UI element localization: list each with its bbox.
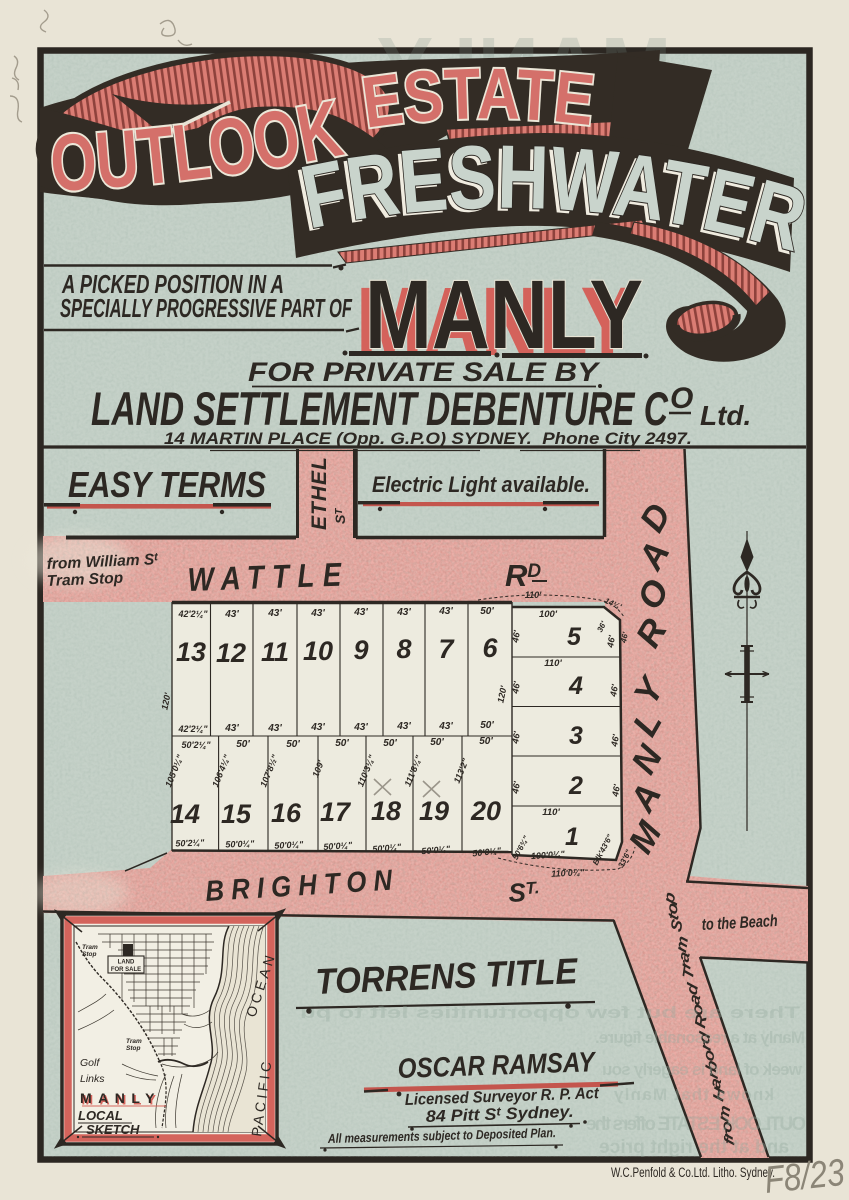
svg-text:and at the right price: and at the right price: [599, 1137, 789, 1158]
svg-text:43': 43': [438, 606, 453, 617]
svg-text:50': 50': [383, 738, 397, 749]
svg-text:50': 50': [480, 606, 494, 617]
svg-text:10: 10: [303, 636, 333, 666]
svg-text:Links: Links: [80, 1073, 105, 1085]
svg-text:42'2¼": 42'2¼": [178, 724, 209, 734]
svg-text:Stop: Stop: [82, 951, 96, 958]
svg-text:20: 20: [470, 796, 501, 826]
svg-text:9: 9: [353, 635, 368, 665]
svg-text:50'0¼": 50'0¼": [225, 838, 255, 849]
svg-text:43': 43': [310, 722, 325, 733]
svg-text:14 MARTIN PLACE (Opp. G.P.O) S: 14 MARTIN PLACE (Opp. G.P.O) SYDNEY. Pho…: [164, 430, 692, 448]
svg-text:18: 18: [371, 796, 401, 826]
svg-text:O: O: [670, 382, 693, 415]
svg-text:LAND SETTLEMENT DEBENTURE C: LAND SETTLEMENT DEBENTURE C: [91, 382, 669, 435]
svg-text:110': 110': [544, 658, 562, 669]
svg-text:16: 16: [271, 798, 302, 828]
svg-text:43': 43': [438, 721, 453, 732]
svg-text:There are but few opportunitie: There are but few opportunities left to …: [300, 1003, 800, 1022]
svg-text:43': 43': [267, 723, 282, 734]
svg-text:6: 6: [482, 633, 498, 663]
svg-text:50': 50': [480, 720, 494, 731]
svg-text:50'0¼": 50'0¼": [323, 840, 353, 852]
svg-text:F8/23: F8/23: [763, 1152, 847, 1200]
svg-text:LOCAL: LOCAL: [78, 1108, 123, 1123]
svg-text:FOR SALE: FOR SALE: [111, 967, 141, 973]
svg-text:Stop: Stop: [126, 1045, 140, 1052]
svg-text:ETHEL: ETHEL: [308, 456, 331, 530]
svg-text:13: 13: [176, 637, 206, 667]
svg-text:1: 1: [565, 823, 579, 851]
svg-text:17: 17: [320, 797, 352, 827]
svg-text:SKETCH: SKETCH: [86, 1122, 140, 1137]
svg-text:8: 8: [396, 634, 411, 664]
svg-text:7: 7: [438, 634, 455, 664]
svg-text:Tram: Tram: [126, 1038, 142, 1045]
svg-text:19: 19: [419, 796, 449, 826]
svg-text:50'0¼": 50'0¼": [274, 839, 304, 851]
svg-text:Tram Stop: Tram Stop: [46, 570, 123, 590]
svg-text:42'2¼": 42'2¼": [178, 609, 209, 619]
svg-text:SPECIALLY PROGRESSIVE PART OF: SPECIALLY PROGRESSIVE PART OF: [60, 293, 353, 323]
svg-text:50'2¼": 50'2¼": [175, 837, 205, 848]
svg-text:15: 15: [221, 799, 252, 829]
svg-text:50': 50': [430, 737, 444, 748]
svg-text:14: 14: [170, 799, 200, 829]
svg-text:43': 43': [353, 722, 368, 733]
svg-text:50': 50': [286, 739, 300, 750]
svg-text:4: 4: [568, 672, 583, 700]
svg-text:100': 100': [539, 609, 558, 620]
svg-text:WATTLE: WATTLE: [187, 555, 350, 598]
svg-text:50'2¼": 50'2¼": [182, 740, 212, 750]
svg-text:50': 50': [479, 736, 493, 747]
svg-text:Ltd.: Ltd.: [700, 400, 751, 431]
svg-text:5: 5: [567, 623, 582, 651]
svg-text:Golf: Golf: [80, 1057, 100, 1069]
svg-text:11: 11: [261, 637, 289, 667]
svg-text:Manly at a reasonable figure.: Manly at a reasonable figure.: [595, 1028, 805, 1047]
svg-text:MANLY: MANLY: [80, 1090, 161, 1106]
svg-text:43': 43': [267, 608, 282, 619]
svg-text:2: 2: [568, 772, 583, 800]
svg-text:EASY TERMS: EASY TERMS: [68, 464, 266, 505]
svg-text:43': 43': [310, 608, 325, 619]
svg-text:43': 43': [353, 607, 368, 618]
svg-text:Tram: Tram: [82, 944, 98, 951]
svg-text:week of land is eagerly sou: week of land is eagerly sou: [602, 1060, 803, 1079]
svg-text:50': 50': [236, 739, 250, 750]
svg-text:OUTLOOK ESTATE offers the: OUTLOOK ESTATE offers the: [586, 1114, 806, 1135]
svg-text:43': 43': [396, 607, 411, 618]
svg-text:50': 50': [335, 738, 349, 749]
svg-text:43': 43': [224, 609, 239, 620]
svg-text:LAND: LAND: [118, 960, 135, 966]
svg-text:43': 43': [396, 721, 411, 732]
svg-text:12: 12: [216, 638, 246, 668]
svg-text:110': 110': [542, 807, 560, 818]
svg-text:Electric Light available.: Electric Light available.: [372, 472, 590, 497]
svg-text:43': 43': [224, 723, 239, 734]
svg-text:knows that Manly: knows that Manly: [613, 1085, 774, 1104]
svg-text:3: 3: [569, 722, 583, 750]
svg-text:W.C.Penfold & Co.Ltd. Litho. S: W.C.Penfold & Co.Ltd. Litho. Sydney.: [611, 1165, 775, 1180]
svg-text:110'0¼": 110'0¼": [551, 867, 585, 879]
